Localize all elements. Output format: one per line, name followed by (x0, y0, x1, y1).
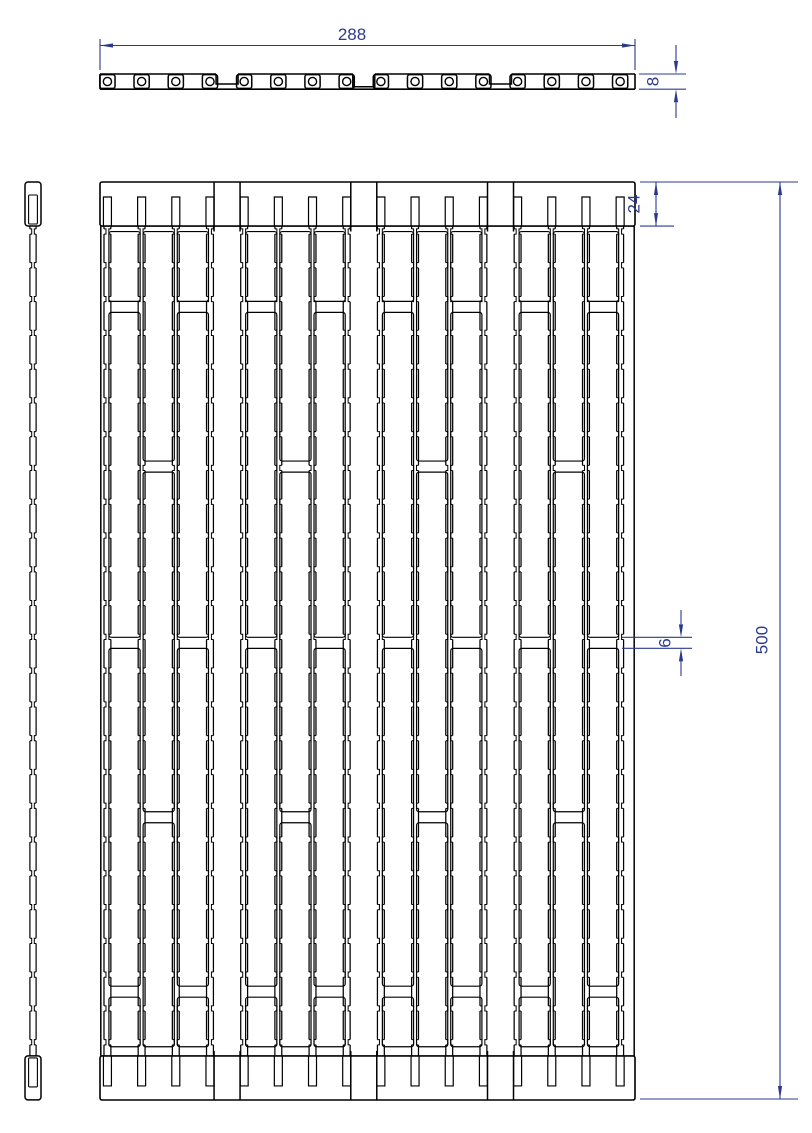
cad-drawing: 288 8 24 6 500 (0, 0, 812, 1133)
side-view (25, 182, 41, 1100)
dim-label-overall-width: 288 (338, 25, 366, 44)
dim-label-end-rail-height: 24 (624, 195, 643, 214)
dim-label-bridge-gap: 6 (655, 638, 674, 647)
top-section-view (100, 74, 635, 89)
dim-label-overall-height: 500 (752, 626, 771, 654)
dimension-annotations (100, 39, 798, 1099)
dim-label-plate-thickness: 8 (643, 77, 662, 86)
drawing-canvas: 288 8 24 6 500 (0, 0, 812, 1133)
front-view (100, 182, 635, 1100)
